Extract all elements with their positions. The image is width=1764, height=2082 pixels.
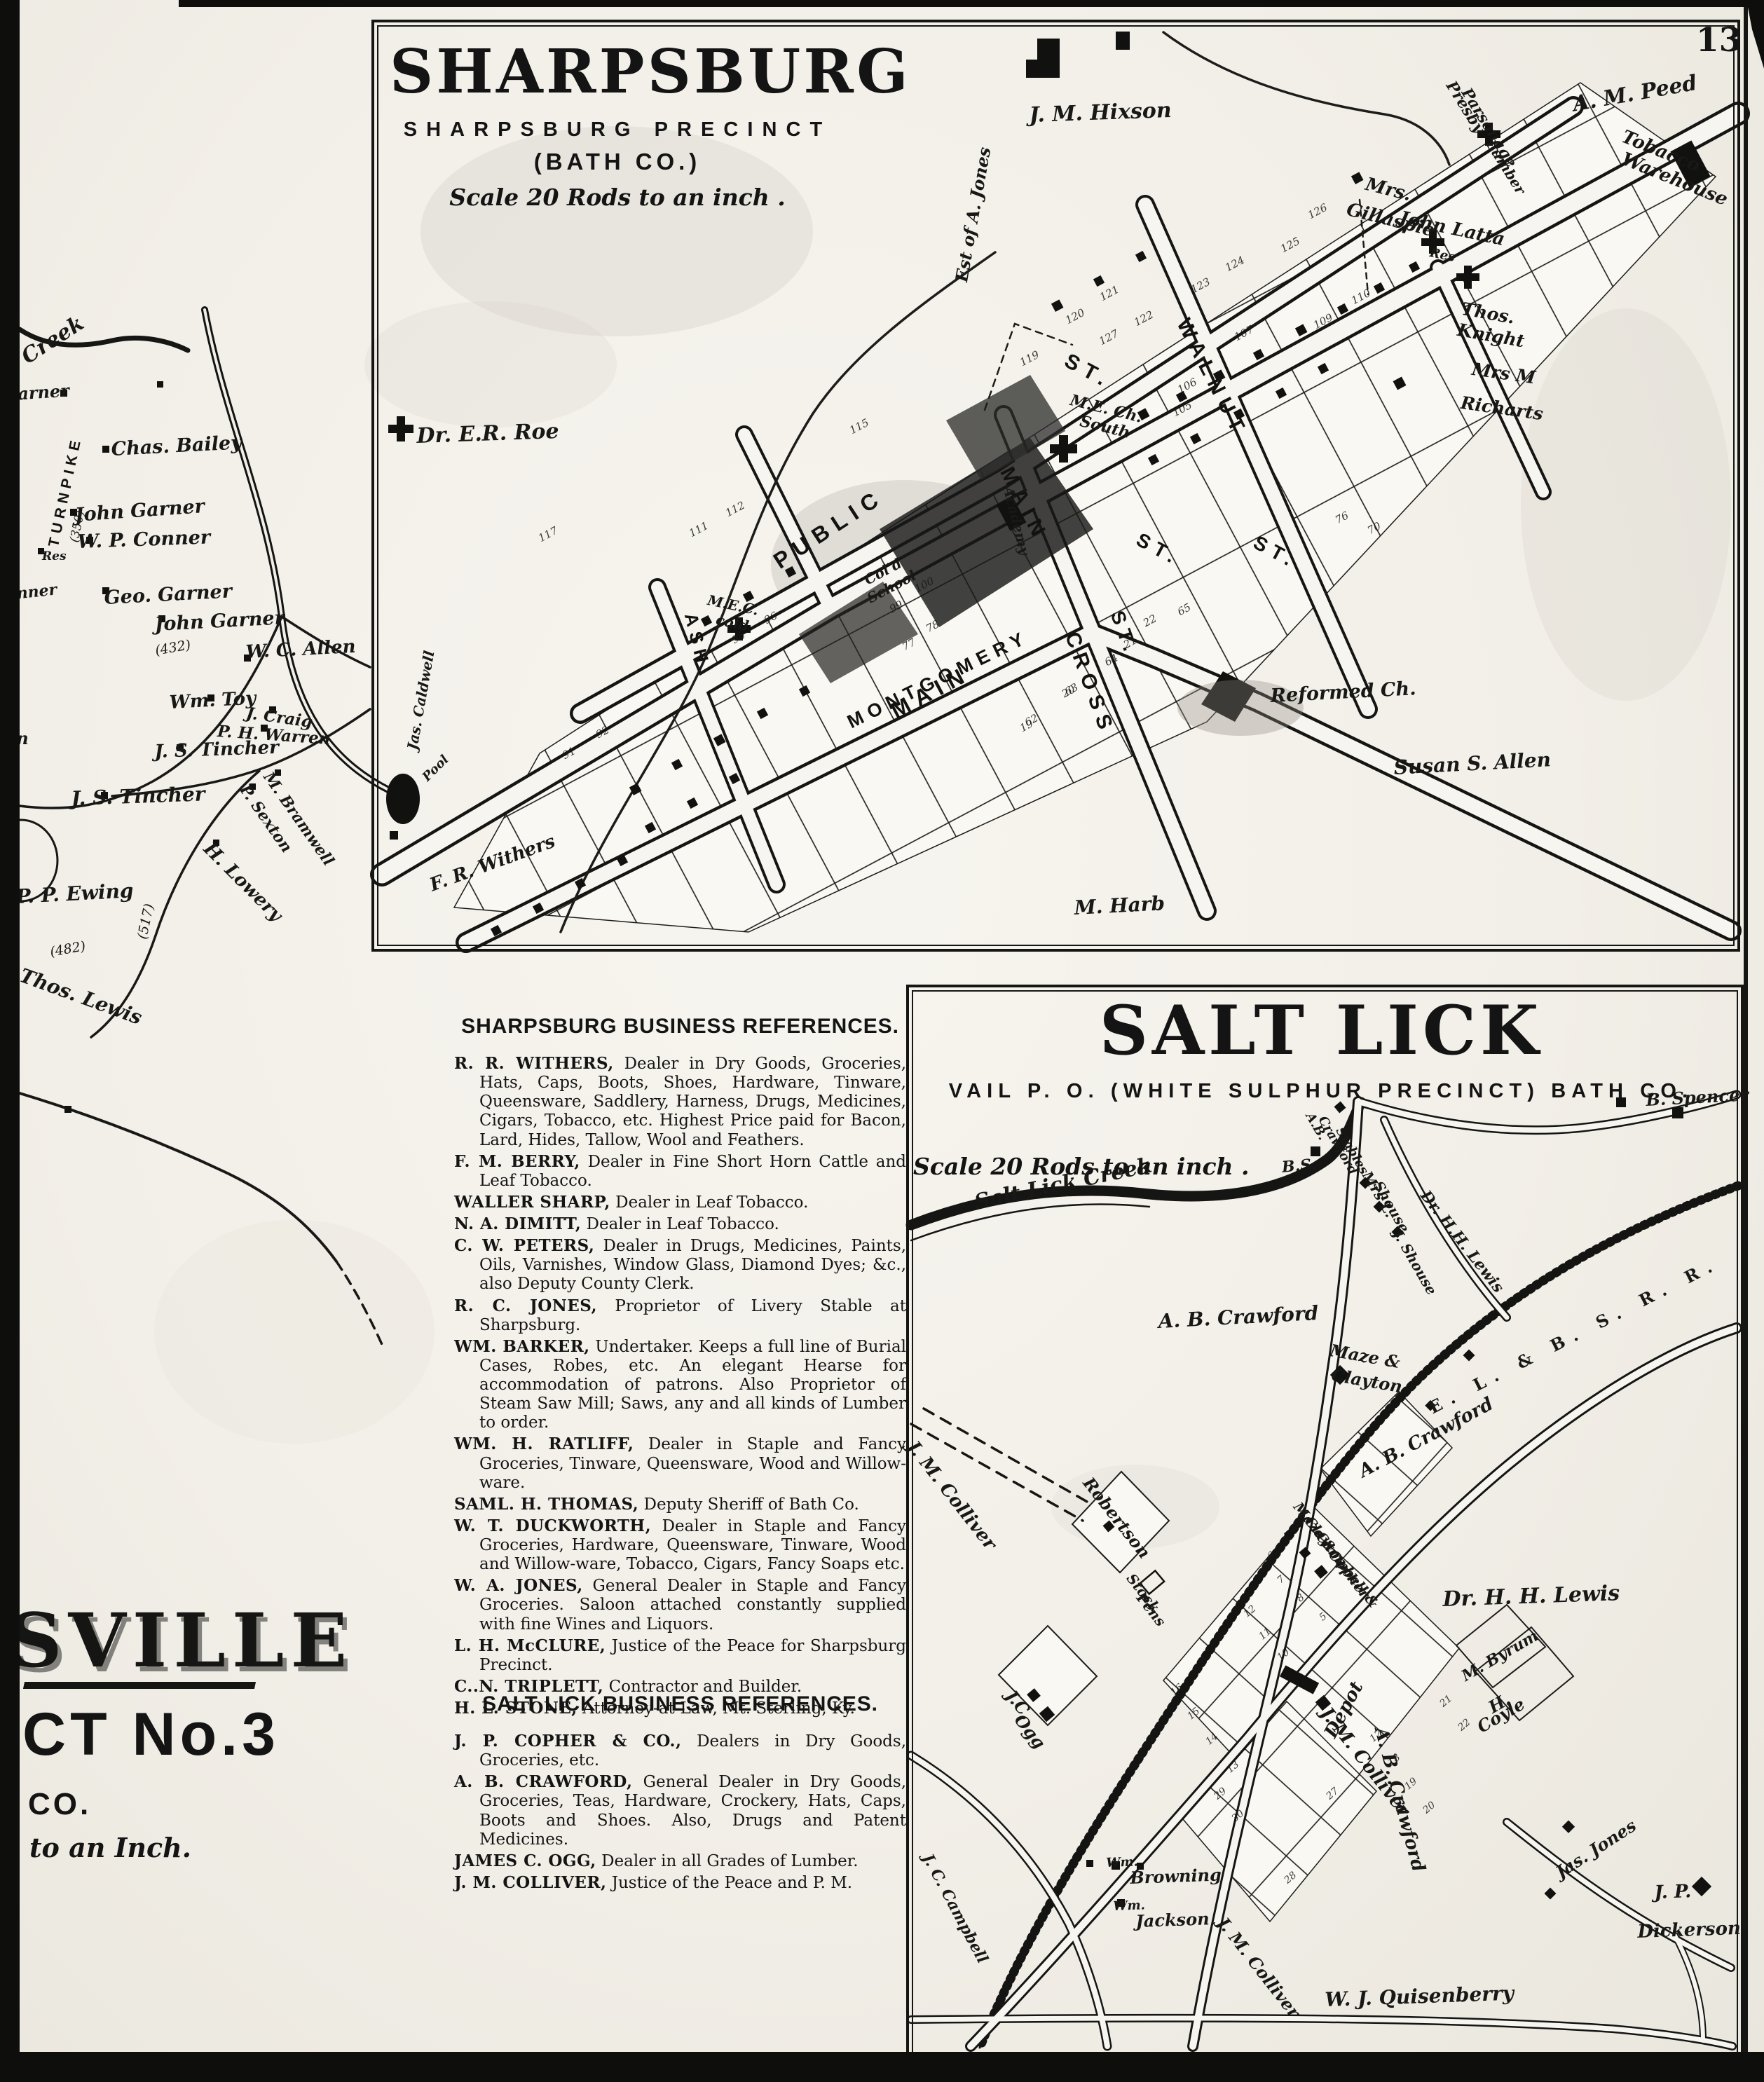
map-label: 28 — [1283, 1870, 1299, 1886]
sharpsburg-subtitle: SHARPSBURG PRECINCT — [390, 118, 845, 142]
map-label: 15 — [1186, 1706, 1202, 1722]
business-reference-entry: WM. H. RATLIFF, Dealer in Staple and Fan… — [454, 1434, 906, 1492]
map-label: 8 — [1295, 1592, 1306, 1603]
map-label: J. M. Colliver — [904, 1438, 999, 1553]
atlas-page: 13 SHARPSBURG SHARPSBURG PRECINCT (BATH … — [0, 0, 1764, 2082]
business-reference-entry: N. A. DIMITT, Dealer in Leaf Tobacco. — [454, 1214, 906, 1234]
corner-title-fragment: SVILLE — [8, 1596, 353, 1684]
left-edge-bar — [0, 0, 20, 2082]
map-label: 29 — [1212, 1786, 1229, 1802]
corner-county-fragment: CO. — [28, 1787, 91, 1822]
map-label: Browning — [1130, 1866, 1222, 1886]
sharpsburg-title-block: SHARPSBURG SHARPSBURG PRECINCT (BATH CO.… — [390, 36, 845, 211]
corner-scale-fragment: to an Inch. — [29, 1832, 191, 1863]
corner-district-fragment: CT No.3 — [22, 1700, 280, 1769]
map-label: Pens — [1134, 1591, 1168, 1629]
map-label: J. M. Colliver — [1215, 1915, 1303, 2021]
business-reference-entry: C. W. PETERS, Dealer in Drugs, Medicines… — [454, 1236, 906, 1294]
map-label: B.S. — [1281, 1157, 1317, 1175]
map-label: Robertson — [1080, 1474, 1153, 1561]
saltlick-title-block: SALT LICK VAIL P. O. (WHITE SULPHUR PREC… — [925, 991, 1717, 1103]
map-label: 7 — [1276, 1574, 1287, 1585]
business-reference-entry: J. P. COPHER & CO., Dealers in Dry Goods… — [454, 1732, 906, 1770]
business-reference-entry: W. T. DUCKWORTH, Dealer in Staple and Fa… — [454, 1516, 906, 1574]
business-reference-entry: JAMES C. OGG, Dealer in all Grades of Lu… — [454, 1851, 906, 1871]
map-label: J. P. — [1654, 1882, 1692, 1902]
business-reference-entry: L. H. McCLURE, Justice of the Peace for … — [454, 1636, 906, 1675]
map-label: 22 — [1456, 1718, 1472, 1733]
map-label: A. B. Crawford — [1158, 1303, 1319, 1331]
business-reference-entry: A. B. CRAWFORD, General Dealer in Dry Go… — [454, 1772, 906, 1849]
business-reference-entry: R. C. JONES, Proprietor of Livery Stable… — [454, 1296, 906, 1335]
saltlick-subtitle: VAIL P. O. (WHITE SULPHUR PRECINCT) BATH… — [925, 1080, 1717, 1103]
sharpsburg-title: SHARPSBURG — [390, 36, 845, 107]
map-label: 11 — [1257, 1626, 1273, 1642]
map-label: 6 — [1266, 1550, 1277, 1561]
corner-title-underline — [23, 1682, 256, 1689]
business-reference-entry: W. A. JONES, General Dealer in Staple an… — [454, 1576, 906, 1634]
business-reference-entry: WALLER SHARP, Dealer in Leaf Tobacco. — [454, 1193, 906, 1212]
map-label: Copher — [1326, 1547, 1372, 1601]
corner-title-block: SVILLE CT No.3 CO. to an Inch. — [20, 1596, 300, 1891]
map-label: A. B. Crawford — [1356, 1395, 1496, 1481]
map-label: 5 — [1318, 1611, 1329, 1622]
map-label: 21 — [1438, 1694, 1454, 1709]
map-label: Jackson — [1135, 1910, 1210, 1930]
map-label: M. Byrum — [1459, 1628, 1541, 1684]
map-label: 14 — [1204, 1732, 1220, 1747]
sharpsburg-business-references: SHARPSBURG BUSINESS REFERENCES. R. R. WI… — [454, 1015, 906, 1720]
sharpsburg-scale: Scale 20 Rods to an inch . — [390, 184, 845, 211]
map-label: 16 — [1169, 1683, 1185, 1698]
sharpsburg-refs-header: SHARPSBURG BUSINESS REFERENCES. — [454, 1015, 906, 1039]
saltlick-business-references: SALT LICK BUSINESS REFERENCES. J. P. COP… — [454, 1692, 906, 1895]
map-label: E. L. & B. S. R. R. — [1426, 1254, 1722, 1416]
business-reference-entry: SAML. H. THOMAS, Deputy Sheriff of Bath … — [454, 1495, 906, 1514]
map-label: 20 — [1421, 1800, 1437, 1816]
sharpsburg-county: (BATH CO.) — [390, 149, 845, 175]
map-label: Dickerson — [1637, 1919, 1741, 1941]
saltlick-scale: Scale 20 Rods to an inch . — [913, 1153, 1250, 1180]
saltlick-refs-header: SALT LICK BUSINESS REFERENCES. — [454, 1692, 906, 1716]
map-label: 13 — [1225, 1760, 1241, 1775]
map-label: 9 — [1300, 1679, 1311, 1690]
business-reference-entry: J. M. COLLIVER, Justice of the Peace and… — [454, 1873, 906, 1893]
map-label: W. J. Quisenberry — [1325, 1984, 1514, 2010]
business-reference-entry: R. R. WITHERS, Dealer in Dry Goods, Groc… — [454, 1054, 906, 1150]
map-label: J. C. Campbell — [920, 1851, 991, 1966]
business-reference-entry: WM. BARKER, Undertaker. Keeps a full lin… — [454, 1337, 906, 1433]
map-label: J. Shouse — [1391, 1228, 1440, 1297]
business-reference-entry: F. M. BERRY, Dealer in Fine Short Horn C… — [454, 1152, 906, 1191]
map-label: 30 — [1230, 1809, 1246, 1824]
saltlick-title: SALT LICK — [925, 991, 1717, 1070]
top-edge-bar — [179, 0, 1764, 7]
map-label: Dr. H. H. Lewis — [1442, 1583, 1620, 1610]
page-number: 13 — [1696, 21, 1742, 60]
map-label: Ogg — [1011, 1711, 1048, 1752]
map-label: Jas. Jones — [1553, 1817, 1639, 1881]
map-label: 12 — [1242, 1604, 1258, 1619]
bottom-edge-bar — [0, 2052, 1764, 2082]
map-label: 27 — [1325, 1786, 1341, 1802]
map-label: 10 — [1276, 1648, 1292, 1663]
